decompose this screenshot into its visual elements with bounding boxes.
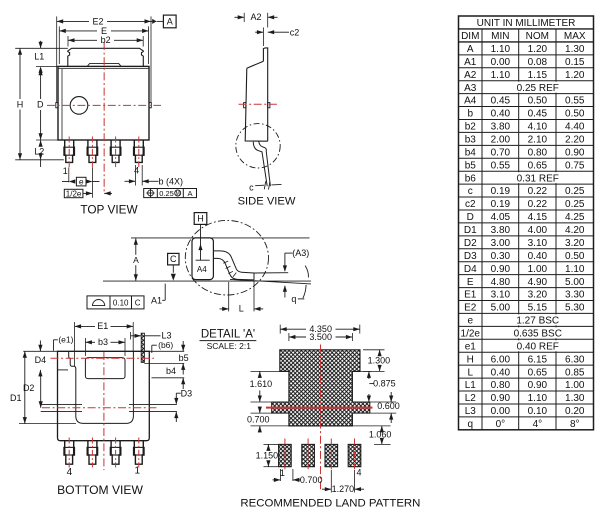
svg-text:L1: L1 xyxy=(465,380,477,391)
svg-text:0.00: 0.00 xyxy=(491,406,511,417)
svg-text:4.20: 4.20 xyxy=(565,225,585,236)
svg-text:D2: D2 xyxy=(23,383,35,393)
svg-text:q: q xyxy=(291,294,296,304)
svg-text:0.25 REF: 0.25 REF xyxy=(517,83,559,94)
svg-text:2.20: 2.20 xyxy=(565,135,585,146)
svg-text:0.600: 0.600 xyxy=(377,401,400,411)
svg-text:3.20: 3.20 xyxy=(565,238,585,249)
svg-text:0.40: 0.40 xyxy=(528,251,548,262)
svg-text:A: A xyxy=(467,44,474,55)
svg-text:H: H xyxy=(197,214,204,224)
svg-text:0.85: 0.85 xyxy=(565,367,585,378)
svg-text:5.15: 5.15 xyxy=(528,303,548,314)
svg-text:RECOMMENDED LAND PATTERN: RECOMMENDED LAND PATTERN xyxy=(240,497,420,509)
svg-text:0.08: 0.08 xyxy=(528,57,548,68)
svg-text:A1: A1 xyxy=(464,57,477,68)
svg-text:MAX: MAX xyxy=(564,31,586,42)
svg-text:0.75: 0.75 xyxy=(565,160,585,171)
svg-text:3.10: 3.10 xyxy=(528,238,548,249)
svg-text:L: L xyxy=(239,304,244,314)
svg-text:2.00: 2.00 xyxy=(491,135,511,146)
svg-text:0.45: 0.45 xyxy=(491,96,511,107)
svg-text:4: 4 xyxy=(356,468,361,478)
svg-text:4.10: 4.10 xyxy=(528,122,548,133)
svg-text:4.05: 4.05 xyxy=(491,212,511,223)
svg-text:E2: E2 xyxy=(92,16,103,26)
svg-text:0.25: 0.25 xyxy=(159,189,174,198)
svg-text:b4: b4 xyxy=(465,148,477,159)
svg-text:SIDE VIEW: SIDE VIEW xyxy=(238,196,296,208)
svg-text:A: A xyxy=(167,17,173,27)
svg-text:D4: D4 xyxy=(35,355,47,365)
svg-text:1.20: 1.20 xyxy=(565,70,585,81)
svg-text:0.55: 0.55 xyxy=(565,96,585,107)
svg-text:0.40: 0.40 xyxy=(491,109,511,120)
svg-text:b2: b2 xyxy=(465,122,477,133)
svg-text:0.25: 0.25 xyxy=(565,199,585,210)
svg-text:0.45: 0.45 xyxy=(528,109,548,120)
svg-text:2.10: 2.10 xyxy=(528,135,548,146)
svg-text:M: M xyxy=(176,191,180,197)
svg-text:4°: 4° xyxy=(533,419,543,430)
svg-text:6.00: 6.00 xyxy=(491,354,511,365)
svg-text:4.25: 4.25 xyxy=(565,212,585,223)
svg-text:0.875: 0.875 xyxy=(373,379,396,389)
svg-text:b: b xyxy=(467,109,473,120)
svg-text:4.15: 4.15 xyxy=(528,212,548,223)
svg-text:0.90: 0.90 xyxy=(565,148,585,159)
svg-text:1.30: 1.30 xyxy=(565,44,585,55)
svg-text:b3: b3 xyxy=(465,135,477,146)
svg-text:1.10: 1.10 xyxy=(491,44,511,55)
svg-text:1.20: 1.20 xyxy=(528,44,548,55)
svg-text:D: D xyxy=(467,212,474,223)
svg-text:D3: D3 xyxy=(464,251,477,262)
svg-text:H: H xyxy=(467,354,474,365)
svg-text:e1: e1 xyxy=(465,341,477,352)
svg-text:MIN: MIN xyxy=(491,31,509,42)
svg-text:E1: E1 xyxy=(464,290,477,301)
svg-text:0.80: 0.80 xyxy=(491,380,511,391)
svg-text:0.25: 0.25 xyxy=(565,186,585,197)
svg-text:0.80: 0.80 xyxy=(528,148,548,159)
svg-text:b6: b6 xyxy=(465,173,477,184)
svg-text:E1: E1 xyxy=(97,321,108,331)
svg-text:E: E xyxy=(467,277,474,288)
svg-text:b3: b3 xyxy=(98,337,108,347)
svg-text:1.27 BSC: 1.27 BSC xyxy=(516,316,559,327)
svg-text:c: c xyxy=(249,183,254,193)
svg-text:1.10: 1.10 xyxy=(528,393,548,404)
svg-text:0.10: 0.10 xyxy=(113,298,129,307)
svg-text:(e1): (e1) xyxy=(58,335,73,345)
svg-text:0.700: 0.700 xyxy=(247,415,270,425)
svg-text:0.50: 0.50 xyxy=(528,96,548,107)
svg-text:0.30: 0.30 xyxy=(491,251,511,262)
svg-text:D: D xyxy=(37,99,44,109)
svg-text:BOTTOM VIEW: BOTTOM VIEW xyxy=(57,483,143,497)
svg-text:3.500: 3.500 xyxy=(309,332,332,342)
svg-text:1.150: 1.150 xyxy=(256,450,279,460)
svg-text:e: e xyxy=(467,316,473,327)
svg-text:1.610: 1.610 xyxy=(250,379,273,389)
svg-text:(A3): (A3) xyxy=(292,248,309,258)
svg-text:0.50: 0.50 xyxy=(565,109,585,120)
svg-text:6.15: 6.15 xyxy=(528,354,548,365)
svg-text:A: A xyxy=(133,255,139,265)
svg-text:0.70: 0.70 xyxy=(491,148,511,159)
svg-text:C: C xyxy=(170,254,177,264)
svg-text:L3: L3 xyxy=(465,406,477,417)
svg-text:4.40: 4.40 xyxy=(565,122,585,133)
svg-text:1: 1 xyxy=(135,465,141,476)
svg-text:e: e xyxy=(79,177,84,187)
svg-text:b5: b5 xyxy=(179,353,189,363)
svg-text:b4: b4 xyxy=(166,366,176,376)
svg-text:3.00: 3.00 xyxy=(491,238,511,249)
svg-text:0.20: 0.20 xyxy=(565,406,585,417)
svg-text:1.10: 1.10 xyxy=(565,264,585,275)
svg-text:b (4X): b (4X) xyxy=(159,176,184,186)
svg-text:L1: L1 xyxy=(34,52,44,62)
svg-text:A2: A2 xyxy=(250,12,261,22)
svg-text:3.10: 3.10 xyxy=(491,290,511,301)
svg-text:A3: A3 xyxy=(464,83,477,94)
svg-text:1.300: 1.300 xyxy=(368,356,391,366)
svg-text:0.19: 0.19 xyxy=(491,199,511,210)
svg-text:0°: 0° xyxy=(496,419,506,430)
svg-text:0.40: 0.40 xyxy=(491,367,511,378)
svg-text:c: c xyxy=(468,186,473,197)
svg-text:8°: 8° xyxy=(570,419,580,430)
svg-text:0.19: 0.19 xyxy=(491,186,511,197)
svg-text:0.65: 0.65 xyxy=(528,367,548,378)
svg-text:A: A xyxy=(187,189,192,198)
svg-text:0.22: 0.22 xyxy=(528,199,548,210)
svg-text:0.90: 0.90 xyxy=(491,264,511,275)
svg-text:L: L xyxy=(467,367,473,378)
svg-text:3.80: 3.80 xyxy=(491,225,511,236)
svg-text:A2: A2 xyxy=(464,70,477,81)
svg-text:0.10: 0.10 xyxy=(528,406,548,417)
svg-text:4: 4 xyxy=(134,165,139,175)
svg-text:D4: D4 xyxy=(464,264,477,275)
svg-text:5.00: 5.00 xyxy=(491,303,511,314)
svg-text:1.30: 1.30 xyxy=(565,393,585,404)
svg-text:0.15: 0.15 xyxy=(565,57,585,68)
svg-text:1.00: 1.00 xyxy=(565,380,585,391)
svg-text:A4: A4 xyxy=(464,96,477,107)
svg-text:D3: D3 xyxy=(181,388,193,398)
svg-text:3.20: 3.20 xyxy=(528,290,548,301)
svg-text:D1: D1 xyxy=(10,393,22,403)
svg-text:D2: D2 xyxy=(464,238,477,249)
svg-text:TOP VIEW: TOP VIEW xyxy=(80,203,138,217)
svg-text:UNIT IN MILLIMETER: UNIT IN MILLIMETER xyxy=(477,18,576,29)
svg-text:1: 1 xyxy=(63,166,68,176)
svg-text:0.22: 0.22 xyxy=(528,186,548,197)
svg-text:1.10: 1.10 xyxy=(491,70,511,81)
svg-text:0.700: 0.700 xyxy=(300,475,323,485)
svg-text:0.55: 0.55 xyxy=(491,160,511,171)
svg-text:4: 4 xyxy=(67,467,73,478)
svg-text:b5: b5 xyxy=(465,160,477,171)
svg-text:5.30: 5.30 xyxy=(565,303,585,314)
svg-text:4.80: 4.80 xyxy=(491,277,511,288)
svg-text:1/2e: 1/2e xyxy=(66,189,82,198)
svg-text:0.31 REF: 0.31 REF xyxy=(517,173,559,184)
svg-text:0.635 BSC: 0.635 BSC xyxy=(514,329,562,340)
svg-text:0.50: 0.50 xyxy=(565,251,585,262)
svg-text:0.90: 0.90 xyxy=(528,380,548,391)
svg-text:A4: A4 xyxy=(197,265,207,274)
svg-text:1/2e: 1/2e xyxy=(461,329,481,340)
svg-text:4.00: 4.00 xyxy=(528,225,548,236)
svg-text:5.00: 5.00 xyxy=(565,277,585,288)
svg-text:H: H xyxy=(17,99,24,109)
svg-text:NOM: NOM xyxy=(526,31,549,42)
svg-text:SCALE: 2:1: SCALE: 2:1 xyxy=(207,341,252,351)
svg-text:0.90: 0.90 xyxy=(491,393,511,404)
svg-text:0.00: 0.00 xyxy=(491,57,511,68)
svg-text:4.90: 4.90 xyxy=(528,277,548,288)
svg-text:b2: b2 xyxy=(101,35,111,45)
svg-text:E2: E2 xyxy=(464,303,477,314)
svg-text:A1: A1 xyxy=(151,295,162,305)
svg-text:1.060: 1.060 xyxy=(369,430,392,440)
svg-text:(b6): (b6) xyxy=(158,340,173,350)
svg-text:1.270: 1.270 xyxy=(332,484,355,494)
svg-text:1.15: 1.15 xyxy=(528,70,548,81)
svg-text:c2: c2 xyxy=(290,27,300,37)
svg-text:1.00: 1.00 xyxy=(528,264,548,275)
svg-text:C: C xyxy=(135,298,141,307)
svg-text:0.40 REF: 0.40 REF xyxy=(517,341,559,352)
svg-text:c2: c2 xyxy=(465,199,476,210)
svg-text:3.80: 3.80 xyxy=(491,122,511,133)
svg-text:0.65: 0.65 xyxy=(528,160,548,171)
svg-text:q: q xyxy=(467,419,473,430)
svg-text:D1: D1 xyxy=(464,225,477,236)
svg-text:DETAIL 'A': DETAIL 'A' xyxy=(201,328,255,340)
svg-text:L2: L2 xyxy=(465,393,477,404)
svg-text:DIM: DIM xyxy=(461,31,479,42)
svg-text:3.30: 3.30 xyxy=(565,290,585,301)
svg-text:6.30: 6.30 xyxy=(565,354,585,365)
